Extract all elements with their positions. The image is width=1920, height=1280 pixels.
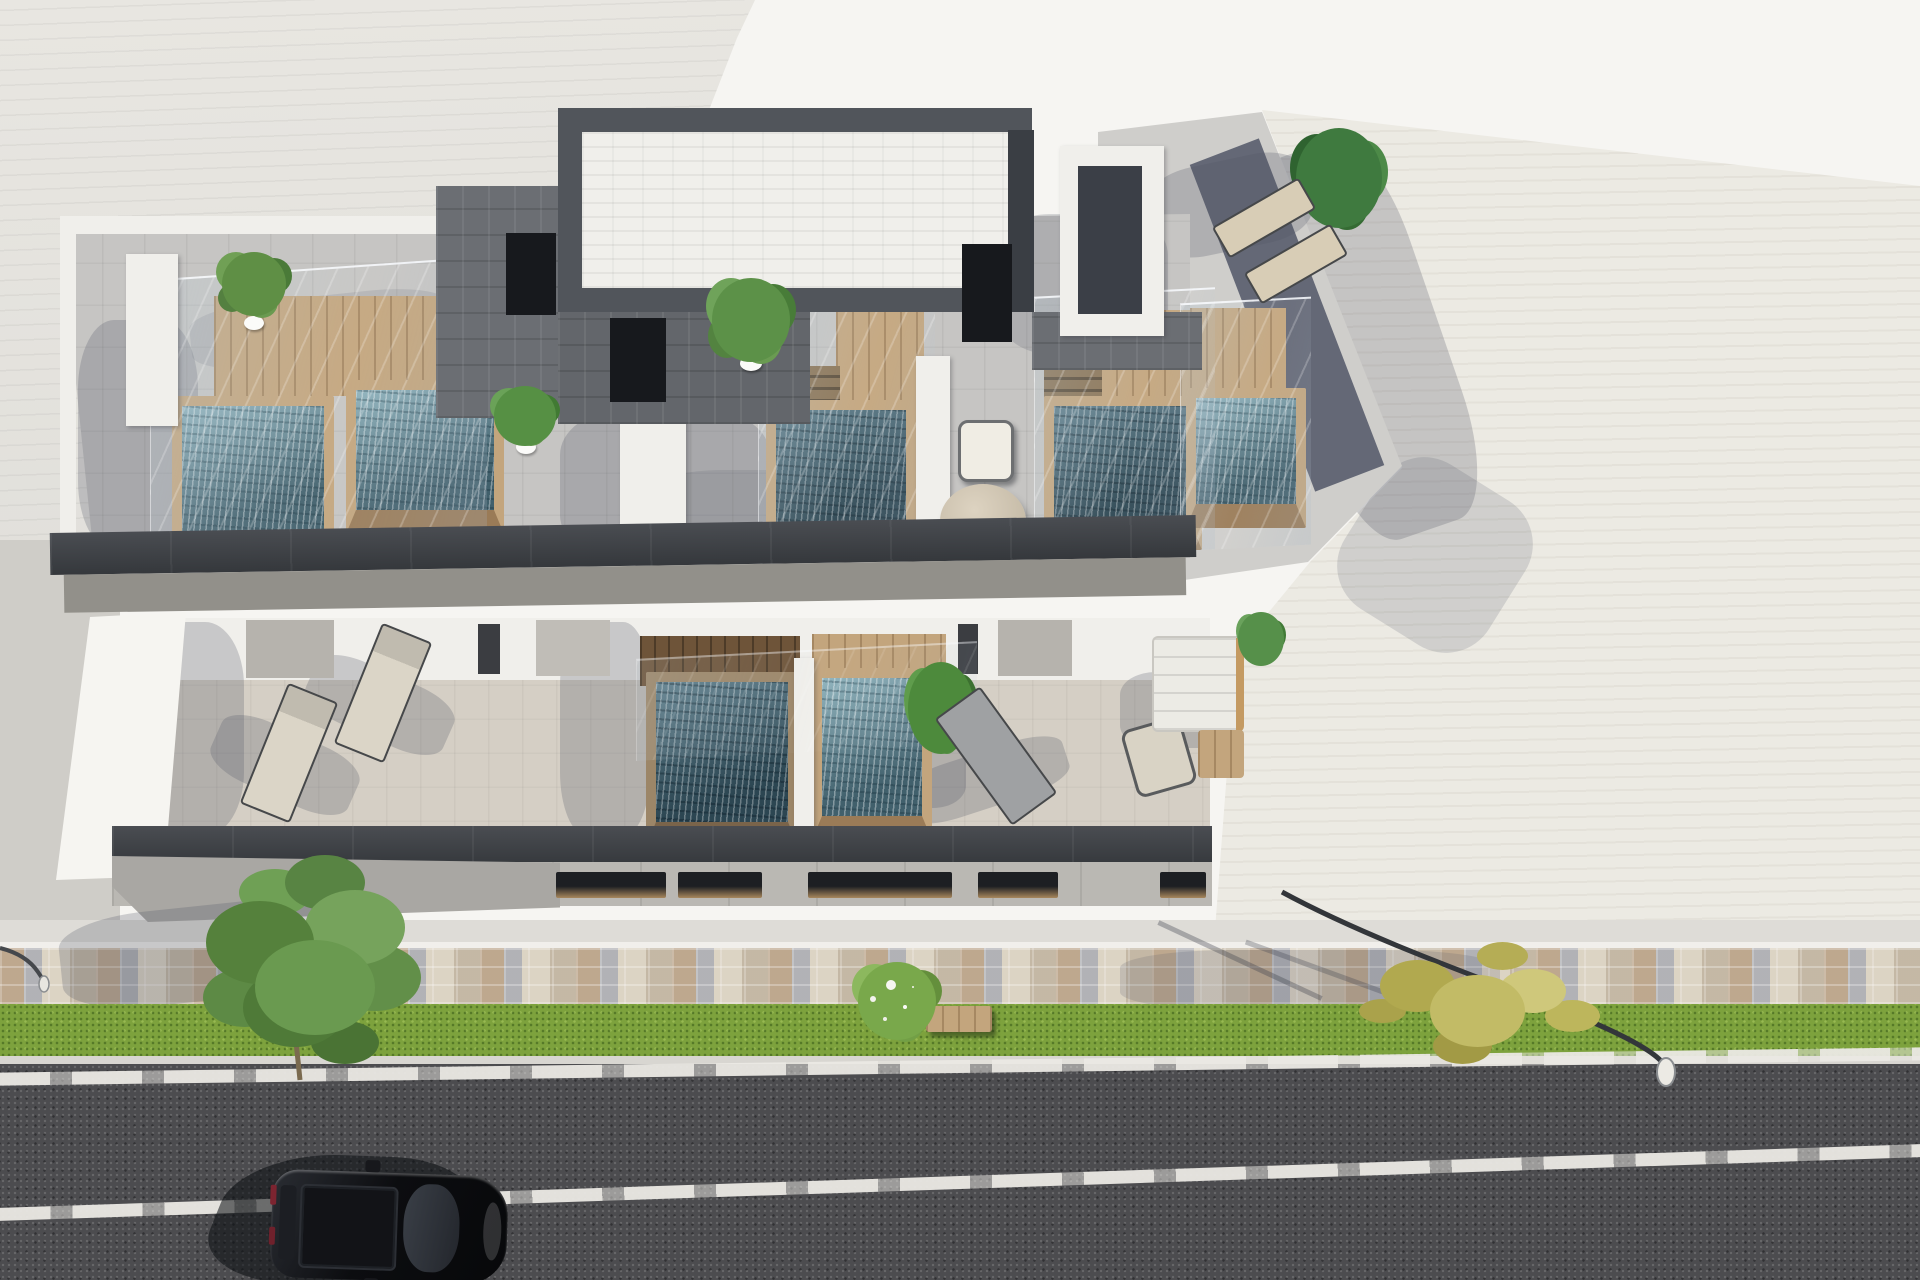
car-rear-window: [278, 1185, 297, 1260]
terrace-chair: [958, 420, 1014, 482]
potted-plant: [712, 278, 790, 362]
palm-plant: [1296, 128, 1382, 228]
wall-panel-gray: [998, 620, 1072, 676]
window-slit: [556, 872, 666, 898]
window-slit: [808, 872, 952, 898]
potted-plant: [222, 252, 286, 316]
potted-plant: [494, 386, 556, 446]
stairwell-opening: [506, 233, 556, 315]
window-slit: [1160, 872, 1206, 898]
parked-black-car: [213, 1123, 518, 1280]
autumn-tree-canopy: [1430, 975, 1525, 1047]
car-mirror: [365, 1160, 380, 1173]
car-taillight: [269, 1227, 276, 1245]
potted-plant: [1238, 612, 1284, 666]
wall-panel-gray: [246, 620, 334, 678]
parapet-top: [60, 216, 450, 234]
green-tree-canopy: [255, 940, 375, 1035]
outdoor-sofa: [1152, 636, 1244, 732]
stairwell-void: [1078, 166, 1142, 314]
car-taillight: [270, 1185, 277, 1205]
window-slit: [978, 872, 1058, 898]
stairwell-opening: [962, 244, 1012, 342]
shrub-flowers: [886, 980, 896, 990]
flowering-shrub: [858, 962, 936, 1040]
white-brick-volume: [558, 108, 1032, 312]
aerial-render-scene: [0, 0, 1920, 1280]
wall-panel-gray: [536, 620, 610, 676]
bench: [926, 1006, 992, 1032]
wood-coffee-table: [1198, 730, 1244, 778]
parapet-left: [60, 216, 76, 558]
divider-wall: [126, 254, 178, 426]
door-opening: [478, 624, 500, 674]
stairwell-opening: [610, 318, 666, 402]
window-slit: [678, 872, 762, 898]
car-sunroof: [298, 1184, 399, 1271]
plant-pot: [244, 316, 264, 330]
